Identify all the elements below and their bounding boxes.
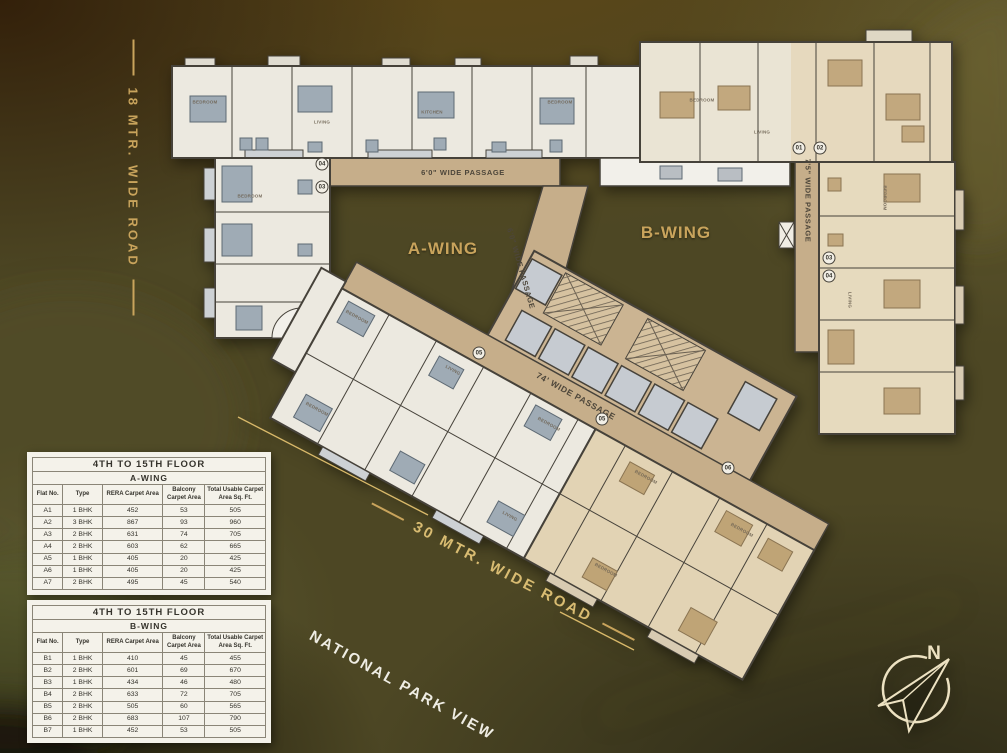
cell: B4 bbox=[33, 689, 63, 701]
cell: A7 bbox=[33, 577, 63, 589]
cell: 3 BHK bbox=[63, 517, 103, 529]
cell: A1 bbox=[33, 505, 63, 517]
cell: 62 bbox=[163, 541, 205, 553]
table-row: B11 BHK41045455 bbox=[33, 653, 266, 665]
table-row: A72 BHK49545540 bbox=[33, 577, 266, 589]
table-row: B42 BHK63372705 bbox=[33, 689, 266, 701]
cell: 455 bbox=[205, 653, 266, 665]
cell: 45 bbox=[163, 653, 205, 665]
cell: 705 bbox=[205, 689, 266, 701]
cell: 480 bbox=[205, 677, 266, 689]
cell: 93 bbox=[163, 517, 205, 529]
table-row: B62 BHK683107790 bbox=[33, 713, 266, 725]
wing-title: B-WING bbox=[33, 620, 266, 633]
table-row: B52 BHK50560565 bbox=[33, 701, 266, 713]
cell: 790 bbox=[205, 713, 266, 725]
table-row: A51 BHK40520425 bbox=[33, 553, 266, 565]
table-row: B22 BHK60169670 bbox=[33, 665, 266, 677]
cell: A3 bbox=[33, 529, 63, 541]
cell: 405 bbox=[102, 553, 163, 565]
cell: 505 bbox=[102, 701, 163, 713]
cell: 107 bbox=[163, 713, 205, 725]
table-wing-row: B-WING bbox=[33, 620, 266, 633]
table-row: B31 BHK43446480 bbox=[33, 677, 266, 689]
table-row: A11 BHK45253505 bbox=[33, 505, 266, 517]
table-body: A11 BHK45253505A23 BHK86793960A32 BHK631… bbox=[33, 505, 266, 590]
cell: 434 bbox=[102, 677, 163, 689]
table-header-row: Flat No.TypeRERA Carpet AreaBalcony Carp… bbox=[33, 485, 266, 505]
area-table-panel-a-wing: 4TH TO 15TH FLOOR A-WING Flat No.TypeRER… bbox=[27, 452, 271, 595]
cell: A4 bbox=[33, 541, 63, 553]
cell: 2 BHK bbox=[63, 577, 103, 589]
column-header: Type bbox=[63, 633, 103, 653]
table-row: B71 BHK45253505 bbox=[33, 725, 266, 737]
cell: B5 bbox=[33, 701, 63, 713]
table-row: A42 BHK60362665 bbox=[33, 541, 266, 553]
table-row: A23 BHK86793960 bbox=[33, 517, 266, 529]
compass-rose bbox=[878, 656, 949, 731]
cell: 45 bbox=[163, 577, 205, 589]
cell: 683 bbox=[102, 713, 163, 725]
cell: 960 bbox=[205, 517, 266, 529]
table-title-row: 4TH TO 15TH FLOOR bbox=[33, 606, 266, 620]
cell: 69 bbox=[163, 665, 205, 677]
area-table-b-wing: 4TH TO 15TH FLOOR B-WING Flat No.TypeRER… bbox=[32, 605, 266, 738]
cell: 74 bbox=[163, 529, 205, 541]
cell: 540 bbox=[205, 577, 266, 589]
column-header: RERA Carpet Area bbox=[102, 633, 163, 653]
cell: B7 bbox=[33, 725, 63, 737]
cell: 1 BHK bbox=[63, 505, 103, 517]
cell: B1 bbox=[33, 653, 63, 665]
cell: 505 bbox=[205, 505, 266, 517]
table-header-row: Flat No.TypeRERA Carpet AreaBalcony Carp… bbox=[33, 633, 266, 653]
cell: 46 bbox=[163, 677, 205, 689]
cell: 2 BHK bbox=[63, 541, 103, 553]
table-title-row: 4TH TO 15TH FLOOR bbox=[33, 458, 266, 472]
column-header: Total Usable Carpet Area Sq. Ft. bbox=[205, 485, 266, 505]
cell: 633 bbox=[102, 689, 163, 701]
area-table-panel-b-wing: 4TH TO 15TH FLOOR B-WING Flat No.TypeRER… bbox=[27, 600, 271, 743]
cell: B6 bbox=[33, 713, 63, 725]
cell: 2 BHK bbox=[63, 529, 103, 541]
cell: B3 bbox=[33, 677, 63, 689]
cell: A6 bbox=[33, 565, 63, 577]
column-header: Type bbox=[63, 485, 103, 505]
cell: 405 bbox=[102, 565, 163, 577]
cell: 1 BHK bbox=[63, 677, 103, 689]
cell: 665 bbox=[205, 541, 266, 553]
cell: 505 bbox=[205, 725, 266, 737]
cell: 53 bbox=[163, 505, 205, 517]
cell: A5 bbox=[33, 553, 63, 565]
column-header: Balcony Carpet Area bbox=[163, 485, 205, 505]
table-body: B11 BHK41045455B22 BHK60169670B31 BHK434… bbox=[33, 653, 266, 738]
column-header: Flat No. bbox=[33, 485, 63, 505]
cell: 867 bbox=[102, 517, 163, 529]
cell: 1 BHK bbox=[63, 553, 103, 565]
cell: 2 BHK bbox=[63, 689, 103, 701]
cell: 2 BHK bbox=[63, 665, 103, 677]
cell: 72 bbox=[163, 689, 205, 701]
table-row: A61 BHK40520425 bbox=[33, 565, 266, 577]
cell: 565 bbox=[205, 701, 266, 713]
cell: 1 BHK bbox=[63, 725, 103, 737]
cell: A2 bbox=[33, 517, 63, 529]
cell: 2 BHK bbox=[63, 701, 103, 713]
floor-title: 4TH TO 15TH FLOOR bbox=[33, 606, 266, 620]
cell: 705 bbox=[205, 529, 266, 541]
cell: 20 bbox=[163, 565, 205, 577]
cell: 452 bbox=[102, 505, 163, 517]
cell: 2 BHK bbox=[63, 713, 103, 725]
cell: 60 bbox=[163, 701, 205, 713]
cell: 410 bbox=[102, 653, 163, 665]
table-wing-row: A-WING bbox=[33, 472, 266, 485]
area-table-a-wing: 4TH TO 15TH FLOOR A-WING Flat No.TypeRER… bbox=[32, 457, 266, 590]
cell: 603 bbox=[102, 541, 163, 553]
cell: 53 bbox=[163, 725, 205, 737]
cell: 425 bbox=[205, 553, 266, 565]
cell: 631 bbox=[102, 529, 163, 541]
cell: 495 bbox=[102, 577, 163, 589]
wing-title: A-WING bbox=[33, 472, 266, 485]
cell: B2 bbox=[33, 665, 63, 677]
floor-title: 4TH TO 15TH FLOOR bbox=[33, 458, 266, 472]
cell: 425 bbox=[205, 565, 266, 577]
column-header: Balcony Carpet Area bbox=[163, 633, 205, 653]
cell: 670 bbox=[205, 665, 266, 677]
cell: 20 bbox=[163, 553, 205, 565]
column-header: Flat No. bbox=[33, 633, 63, 653]
cell: 601 bbox=[102, 665, 163, 677]
column-header: Total Usable Carpet Area Sq. Ft. bbox=[205, 633, 266, 653]
cell: 452 bbox=[102, 725, 163, 737]
brochure-floor-plan-page: 18 MTR. WIDE ROAD 30 MTR. WIDE ROAD NATI… bbox=[0, 0, 1007, 753]
cell: 1 BHK bbox=[63, 653, 103, 665]
table-row: A32 BHK63174705 bbox=[33, 529, 266, 541]
column-header: RERA Carpet Area bbox=[102, 485, 163, 505]
cell: 1 BHK bbox=[63, 565, 103, 577]
